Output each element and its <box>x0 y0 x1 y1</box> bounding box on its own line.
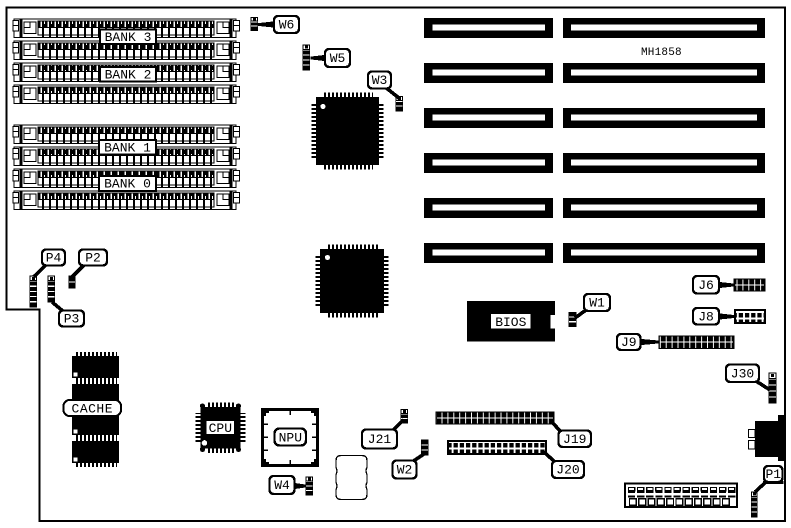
svg-text:J6: J6 <box>698 278 714 293</box>
svg-text:CACHE: CACHE <box>72 402 114 417</box>
svg-text:W3: W3 <box>372 73 388 88</box>
svg-text:NPU: NPU <box>279 431 302 446</box>
svg-text:J9: J9 <box>621 335 637 350</box>
svg-text:J19: J19 <box>563 432 586 447</box>
svg-text:W6: W6 <box>279 18 295 33</box>
svg-text:W1: W1 <box>589 296 605 311</box>
svg-text:BIOS: BIOS <box>495 315 526 330</box>
svg-text:J20: J20 <box>556 463 579 478</box>
svg-text:CPU: CPU <box>209 421 232 436</box>
svg-text:W2: W2 <box>397 463 413 478</box>
svg-text:BANK 3: BANK 3 <box>105 30 152 45</box>
svg-text:P3: P3 <box>64 312 80 327</box>
svg-text:BANK 2: BANK 2 <box>105 67 152 82</box>
svg-text:W5: W5 <box>330 51 346 66</box>
svg-text:J21: J21 <box>368 432 392 447</box>
svg-text:BANK 0: BANK 0 <box>104 177 151 192</box>
svg-text:P4: P4 <box>46 251 62 266</box>
svg-text:BANK 1: BANK 1 <box>104 140 151 155</box>
svg-text:P1: P1 <box>765 467 781 482</box>
svg-text:MH1858: MH1858 <box>641 47 682 59</box>
svg-text:J8: J8 <box>698 309 714 324</box>
svg-text:W4: W4 <box>274 478 290 493</box>
svg-text:P2: P2 <box>85 251 101 266</box>
svg-text:J30: J30 <box>731 366 754 381</box>
